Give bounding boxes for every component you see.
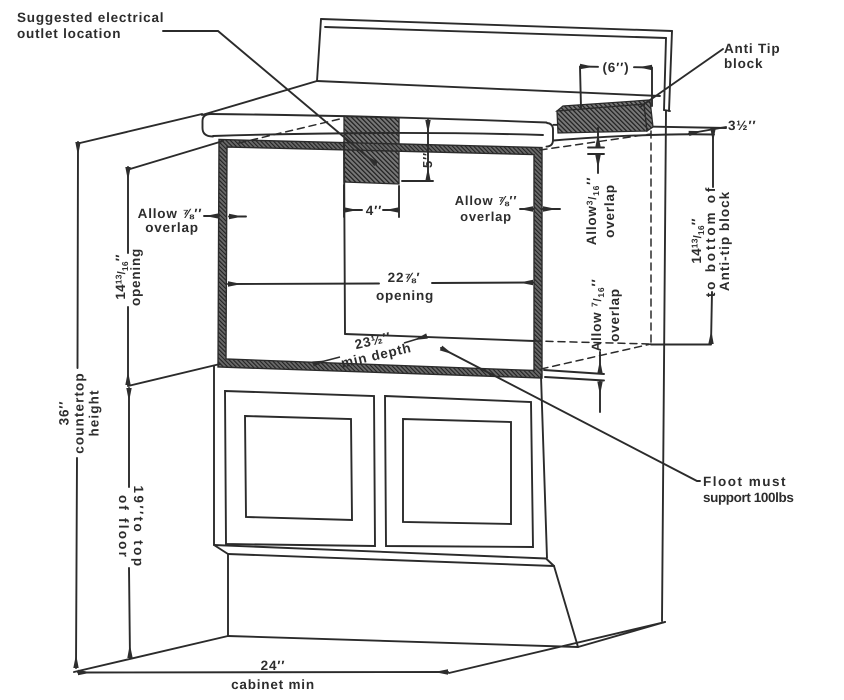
svg-text:opening: opening <box>128 248 143 306</box>
svg-text:support 100lbs: support 100lbs <box>703 490 793 505</box>
svg-text:19′′to top: 19′′to top <box>131 486 146 569</box>
svg-text:Suggested electrical: Suggested electrical <box>17 10 164 25</box>
svg-text:Floot must: Floot must <box>703 474 787 489</box>
svg-text:outlet location: outlet location <box>17 26 121 41</box>
svg-text:cabinet min: cabinet min <box>231 677 315 692</box>
svg-text:3½′′: 3½′′ <box>728 118 756 133</box>
svg-text:overlap: overlap <box>145 220 199 235</box>
svg-text:countertop: countertop <box>72 372 87 454</box>
svg-text:overlap: overlap <box>602 184 617 238</box>
svg-text:height: height <box>87 389 102 436</box>
svg-text:Anti Tip: Anti Tip <box>724 41 780 56</box>
svg-text:block: block <box>724 56 763 71</box>
svg-text:to bottom of: to bottom of <box>703 185 718 297</box>
svg-text:Allow ⅞′′: Allow ⅞′′ <box>455 193 518 208</box>
svg-text:36′′: 36′′ <box>57 401 72 426</box>
svg-text:4′′: 4′′ <box>366 203 382 218</box>
svg-text:24′′: 24′′ <box>261 658 286 673</box>
svg-text:overlap: overlap <box>460 209 512 224</box>
svg-text:Anti-tip block: Anti-tip block <box>717 191 732 291</box>
svg-text:opening: opening <box>376 288 434 303</box>
svg-text:5′′: 5′′ <box>420 152 435 168</box>
svg-text:overlap: overlap <box>607 288 622 342</box>
svg-text:22⅞′: 22⅞′ <box>388 270 421 285</box>
svg-text:Allow3/16′′: Allow3/16′′ <box>584 177 601 246</box>
svg-text:of floor: of floor <box>116 495 131 559</box>
svg-text:(6′′): (6′′) <box>603 60 630 75</box>
svg-text:Allow 7/16′′: Allow 7/16′′ <box>589 278 606 351</box>
svg-text:Allow ⅞′′: Allow ⅞′′ <box>138 206 203 221</box>
